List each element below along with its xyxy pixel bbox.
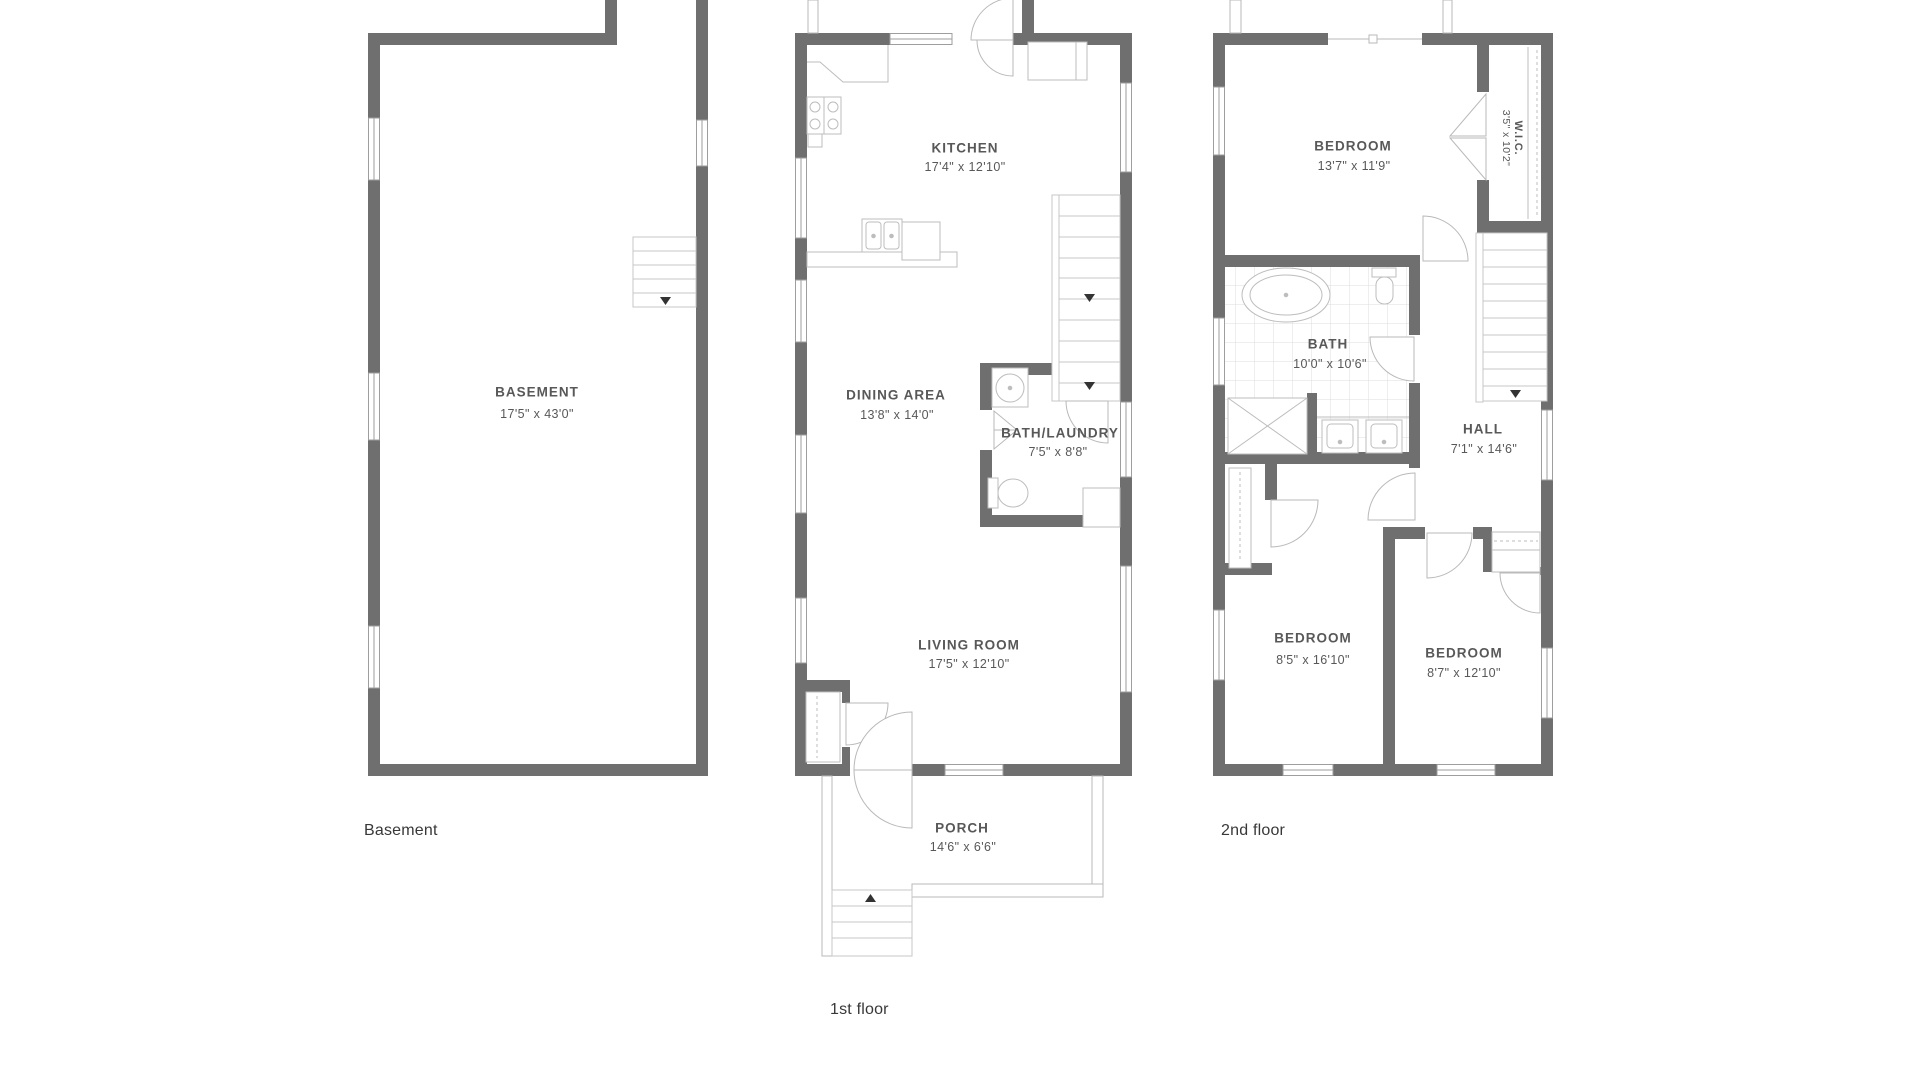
room-label-basement: BASEMENT (495, 385, 579, 400)
door-swing (1368, 473, 1415, 520)
room-label-bath: BATH (1308, 337, 1349, 352)
room-dims-dining-area: 13'8" x 14'0" (860, 408, 934, 422)
room-dims-bedroom-top: 13'7" x 11'9" (1318, 159, 1391, 173)
basement-windows (369, 118, 708, 688)
room-dims-bath: 10'0" x 10'6" (1293, 357, 1367, 371)
room-dims-wic: 3'5" x 10'2" (1500, 110, 1512, 167)
room-dims-bedroom-left: 8'5" x 16'10" (1276, 653, 1350, 667)
door-swing (1427, 533, 1472, 578)
room-label-porch: PORCH (935, 821, 989, 836)
roof-line-stub (1230, 0, 1241, 33)
floor-label-basement: Basement (364, 822, 438, 840)
room-label-wic: W.I.C. (1512, 110, 1524, 167)
room-dims-porch: 14'6" x 6'6" (930, 840, 996, 854)
entry-door-swing (971, 0, 1013, 76)
floor-label-first: 1st floor (830, 1001, 889, 1019)
wic-closet-rod (1528, 47, 1537, 219)
room-label-bedroom-top: BEDROOM (1314, 139, 1392, 154)
right-bedroom-closet (1492, 532, 1540, 613)
room-dims-hall: 7'1" x 14'6" (1451, 442, 1517, 456)
room-dims-living-room: 17'5" x 12'10" (928, 657, 1009, 671)
room-label-living-room: LIVING ROOM (918, 638, 1020, 653)
wic-doors (1450, 94, 1486, 180)
room-label-hall: HALL (1463, 422, 1503, 437)
floor-label-second: 2nd floor (1221, 822, 1285, 840)
room-label-kitchen: KITCHEN (932, 141, 999, 156)
room-dims-basement: 17'5" x 43'0" (500, 407, 574, 421)
roof-line-stub (1443, 0, 1452, 33)
roof-line-stub (808, 0, 818, 33)
room-dims-bedroom-right: 8'7" x 12'10" (1427, 666, 1501, 680)
room-label-bedroom-left: BEDROOM (1274, 631, 1352, 646)
second-floor-stairs (1476, 233, 1547, 402)
room-label-bedroom-right: BEDROOM (1425, 646, 1503, 661)
door-swing (1423, 216, 1468, 261)
first-floor-stairs (1052, 195, 1120, 401)
basement-stairs (633, 237, 696, 307)
room-dims-kitchen: 17'4" x 12'10" (924, 160, 1005, 174)
room-dims-bath-laundry: 7'5" x 8'8" (1028, 445, 1087, 459)
room-label-dining-area: DINING AREA (846, 388, 946, 403)
room-label-bath-laundry: BATH/LAUNDRY (1001, 426, 1119, 441)
floorplan-canvas: BASEMENT 17'5" x 43'0" KITCHEN 17'4" x 1… (0, 0, 1920, 1080)
top-wall-window (1328, 34, 1422, 45)
room-label-wic-block: W.I.C. 3'5" x 10'2" (1500, 110, 1524, 167)
